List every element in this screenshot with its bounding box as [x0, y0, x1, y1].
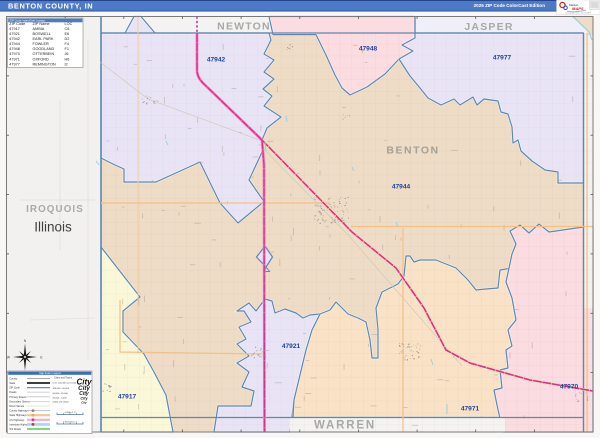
- svg-text:100,000 - 50,000: 100,000 - 50,000: [53, 388, 70, 390]
- svg-text:C6: C6: [65, 27, 70, 31]
- svg-text:NEWTON: NEWTON: [217, 21, 271, 33]
- svg-text:47921: 47921: [9, 32, 20, 36]
- svg-text:EARL PARK: EARL PARK: [33, 37, 54, 41]
- svg-text:FOWLER: FOWLER: [33, 42, 50, 46]
- svg-text:F4: F4: [65, 42, 69, 46]
- svg-text:47977: 47977: [9, 62, 20, 66]
- svg-text:ZIP Name: ZIP Name: [33, 22, 50, 26]
- svg-text:47942: 47942: [207, 57, 226, 64]
- svg-text:I2: I2: [65, 62, 68, 66]
- svg-text:State Highways: State Highways: [9, 414, 27, 417]
- svg-text:AMBIA: AMBIA: [33, 27, 45, 31]
- svg-text:ZIP Code: ZIP Code: [9, 387, 20, 390]
- svg-text:Demographic Maps - MarketMAPS: Demographic Maps - MarketMAPS: [565, 12, 592, 15]
- svg-text:WARREN: WARREN: [314, 420, 376, 432]
- svg-text:47944: 47944: [9, 42, 20, 46]
- svg-text:OTTERBEIN: OTTERBEIN: [33, 52, 55, 56]
- svg-text:Over 100,000 see Detail: Over 100,000 see Detail: [53, 382, 77, 385]
- svg-text:47971: 47971: [461, 406, 480, 413]
- svg-text:H6: H6: [65, 57, 70, 61]
- svg-text:0 Kilometers 2: 0 Kilometers 2: [63, 420, 78, 423]
- svg-text:Map Scale / Legend: Map Scale / Legend: [39, 372, 61, 375]
- svg-text:47971: 47971: [9, 57, 20, 61]
- svg-text:Secondary Streets: Secondary Streets: [9, 400, 30, 403]
- svg-text:MAPS: MAPS: [572, 6, 584, 11]
- svg-text:BENTON COUNTY, IN: BENTON COUNTY, IN: [8, 1, 93, 10]
- svg-text:47917: 47917: [118, 394, 137, 401]
- svg-text:City: City: [81, 401, 87, 405]
- svg-text:County: County: [9, 377, 18, 380]
- svg-text:J6: J6: [65, 52, 69, 56]
- svg-text:47970: 47970: [9, 52, 20, 56]
- svg-text:IROQUOIS: IROQUOIS: [26, 204, 84, 215]
- svg-text:JASPER: JASPER: [464, 21, 513, 33]
- svg-text:GOODLAND: GOODLAND: [33, 47, 55, 51]
- svg-text:US Highways: US Highways: [9, 419, 25, 422]
- svg-text:BOSWELL: BOSWELL: [33, 32, 51, 36]
- svg-text:Cities and Towns: Cities and Towns: [54, 377, 73, 380]
- svg-text:25,000 - 5,000: 25,000 - 5,000: [53, 398, 68, 400]
- svg-text:D2: D2: [65, 37, 70, 41]
- svg-text:0 Miles 1.3: 0 Miles 1.3: [65, 412, 76, 414]
- svg-text:State: State: [9, 382, 15, 385]
- svg-text:47942: 47942: [9, 37, 20, 41]
- svg-text:50,000 - 25,000: 50,000 - 25,000: [53, 393, 69, 395]
- svg-text:BENTON: BENTON: [386, 145, 439, 157]
- svg-text:F1: F1: [65, 47, 69, 51]
- svg-text:REMINGTON: REMINGTON: [33, 62, 56, 66]
- svg-text:47948: 47948: [9, 47, 20, 51]
- svg-text:E6: E6: [65, 32, 70, 36]
- svg-text:Toll Roads: Toll Roads: [9, 428, 21, 431]
- svg-text:OXFORD: OXFORD: [33, 57, 50, 61]
- svg-text:47944: 47944: [392, 184, 411, 191]
- svg-text:Minor Streets: Minor Streets: [9, 405, 25, 408]
- svg-text:47970: 47970: [560, 384, 579, 391]
- svg-text:County Highways: County Highways: [9, 410, 29, 413]
- svg-text:2025 ZIP Code ColorCast Editio: 2025 ZIP Code ColorCast Edition: [474, 3, 546, 8]
- svg-text:5,000 and Under: 5,000 and Under: [53, 401, 70, 404]
- svg-text:47977: 47977: [493, 55, 512, 62]
- svg-text:Roads: Roads: [9, 391, 17, 394]
- svg-text:Primary Streets: Primary Streets: [9, 396, 27, 399]
- svg-text:47948: 47948: [359, 46, 378, 53]
- svg-text:LOC: LOC: [65, 22, 73, 26]
- svg-text:47917: 47917: [9, 27, 20, 31]
- svg-text:ZIP Code: ZIP Code: [9, 22, 25, 26]
- svg-text:Illinois: Illinois: [34, 220, 72, 235]
- svg-text:47921: 47921: [282, 343, 301, 350]
